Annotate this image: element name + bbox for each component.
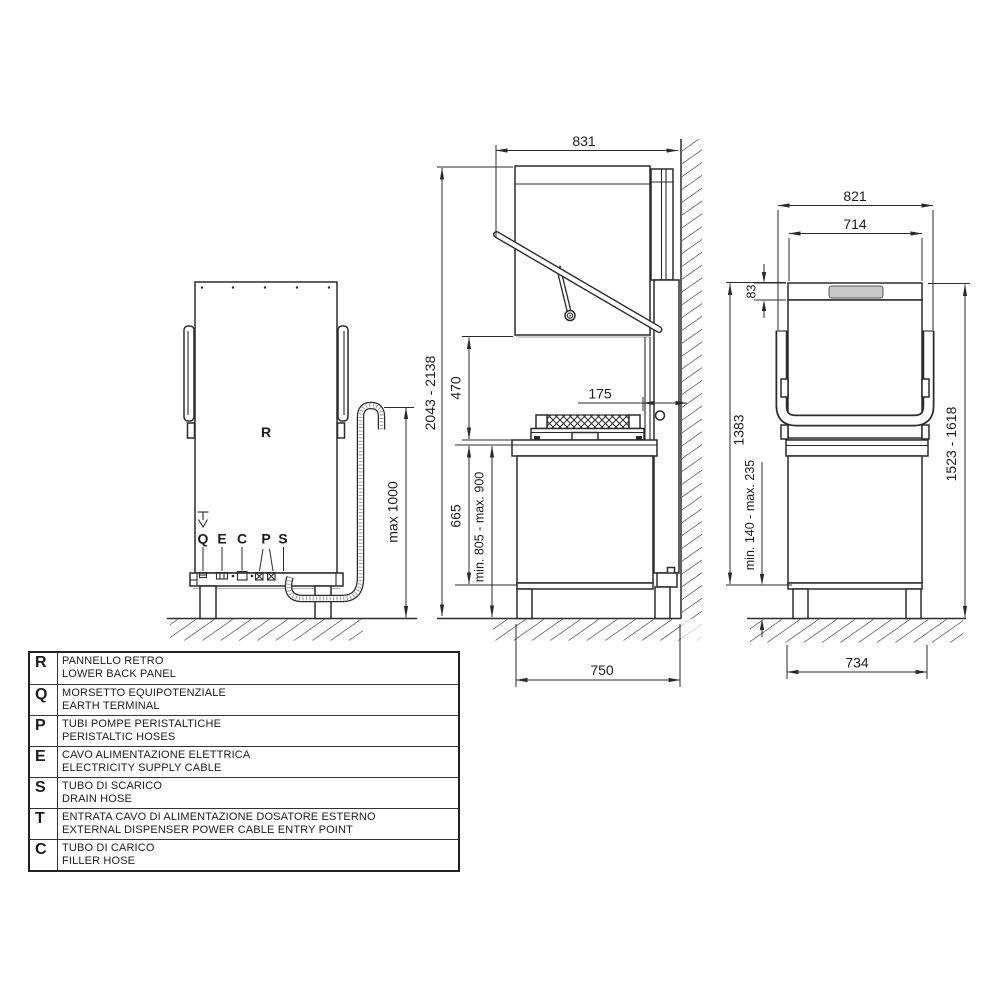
legend-text-it: ENTRATA CAVO DI ALIMENTAZIONE DOSATORE E… — [62, 811, 456, 824]
svg-text:821: 821 — [843, 188, 867, 204]
legend-text-en: LOWER BACK PANEL — [62, 668, 456, 681]
ground-hatch — [493, 620, 681, 641]
svg-text:1383: 1383 — [731, 414, 747, 445]
ground-hatch — [750, 620, 963, 643]
legend-text-en: PERISTALTIC HOSES — [62, 731, 456, 744]
svg-text:831: 831 — [572, 133, 596, 149]
dim-base-width-734: 734 — [787, 645, 927, 679]
dim-hood-opening-470: 470 — [448, 337, 514, 441]
svg-text:734: 734 — [845, 655, 869, 671]
legend-text-it: TUBI POMPE PERISTALTICHE — [62, 718, 456, 731]
left-leg — [793, 589, 808, 619]
rear-duct — [651, 169, 679, 619]
dim-loading-height: min. 805 - max. 900 — [473, 446, 493, 617]
legend-row: T ENTRATA CAVO DI ALIMENTAZIONE DOSATORE… — [30, 808, 458, 839]
legend-description: TUBO DI CARICO FILLER HOSE — [58, 840, 458, 870]
svg-text:1523 - 1618: 1523 - 1618 — [943, 406, 959, 481]
label-c: C — [237, 531, 247, 547]
wall-hatch — [682, 139, 702, 619]
svg-text:175: 175 — [588, 386, 612, 402]
legend-text-en: EARTH TERMINAL — [62, 700, 456, 713]
dim-body-width-714: 714 — [789, 216, 922, 281]
legend-description: TUBI POMPE PERISTALTICHE PERISTALTIC HOS… — [58, 716, 458, 746]
legend-text-en: DRAIN HOSE — [62, 793, 456, 806]
right-handle-tube — [338, 326, 349, 438]
svg-text:665: 665 — [448, 504, 464, 528]
legend-row: R PANNELLO RETRO LOWER BACK PANEL — [30, 653, 458, 684]
legend-row: S TUBO DI SCARICO DRAIN HOSE — [30, 777, 458, 808]
legend-text-it: MORSETTO EQUIPOTENZIALE — [62, 687, 456, 700]
svg-text:max 1000: max 1000 — [385, 481, 401, 543]
dish-rack — [531, 415, 644, 440]
back-view: Q E C P S — [167, 282, 417, 641]
left-handle-tube — [184, 326, 195, 438]
wall-fixing-hole — [656, 411, 665, 420]
technical-drawing-page: Q E C P S — [0, 0, 1000, 1000]
legend-text-it: TUBO DI SCARICO — [62, 780, 456, 793]
left-leg — [200, 586, 216, 619]
legend-key: R — [30, 653, 58, 684]
legend-text-it: TUBO DI CARICO — [62, 842, 456, 855]
legend-row: Q MORSETTO EQUIPOTENZIALE EARTH TERMINAL — [30, 684, 458, 715]
legend-text-en: EXTERNAL DISPENSER POWER CABLE ENTRY POI… — [62, 824, 456, 837]
bottom-rail — [190, 573, 343, 586]
svg-text:714: 714 — [843, 216, 867, 232]
svg-text:min. 805 - max. 900: min. 805 - max. 900 — [473, 472, 487, 583]
legend-text-it: CAVO ALIMENTAZIONE ELETTRICA — [62, 749, 456, 762]
legend-description: CAVO ALIMENTAZIONE ELETTRICA ELECTRICITY… — [58, 747, 458, 777]
legend-key: T — [30, 809, 58, 839]
legend-description: TUBO DI SCARICO DRAIN HOSE — [58, 778, 458, 808]
label-e: E — [217, 531, 226, 547]
label-p: P — [261, 531, 270, 547]
right-leg — [906, 589, 921, 619]
svg-text:750: 750 — [590, 662, 614, 678]
legend-row: E CAVO ALIMENTAZIONE ELETTRICA ELECTRICI… — [30, 746, 458, 777]
legend-description: PANNELLO RETRO LOWER BACK PANEL — [58, 653, 458, 684]
legend-key: S — [30, 778, 58, 808]
lower-body-front — [786, 440, 928, 619]
svg-text:2043 - 2138: 2043 - 2138 — [422, 355, 438, 430]
front-leg — [517, 589, 532, 619]
front-view: 821 714 83 1383 1523 - 1618 — [726, 188, 970, 679]
dim-top-panel-83: 83 — [745, 264, 787, 318]
lower-body — [512, 440, 657, 619]
label-s: S — [278, 531, 287, 547]
dim-feet-range: min. 140 - max. 235 — [743, 460, 792, 637]
legend-table: R PANNELLO RETRO LOWER BACK PANEL Q MORS… — [28, 651, 460, 872]
legend-text-en: ELECTRICITY SUPPLY CABLE — [62, 762, 456, 775]
svg-text:83: 83 — [745, 285, 759, 299]
legend-row: P TUBI POMPE PERISTALTICHE PERISTALTIC H… — [30, 715, 458, 746]
side-view: 831 2043 - 2138 470 665 min. 805 - max. … — [422, 133, 702, 687]
dim-drain-height: max 1000 — [384, 408, 414, 618]
svg-text:min. 140 - max. 235: min. 140 - max. 235 — [743, 460, 757, 571]
legend-key: Q — [30, 685, 58, 715]
legend-key: E — [30, 747, 58, 777]
control-display — [829, 286, 883, 298]
label-q: Q — [198, 531, 209, 547]
legend-text-it: PANNELLO RETRO — [62, 655, 456, 668]
legend-key: P — [30, 716, 58, 746]
legend-description: ENTRATA CAVO DI ALIMENTAZIONE DOSATORE E… — [58, 809, 458, 839]
svg-text:470: 470 — [448, 376, 464, 400]
legend-text-en: FILLER HOSE — [62, 855, 456, 868]
legend-key: C — [30, 840, 58, 870]
legend-description: MORSETTO EQUIPOTENZIALE EARTH TERMINAL — [58, 685, 458, 715]
panel-letter: R — [261, 424, 271, 440]
legend-row: C TUBO DI CARICO FILLER HOSE — [30, 839, 458, 870]
ground-hatch — [170, 620, 363, 641]
